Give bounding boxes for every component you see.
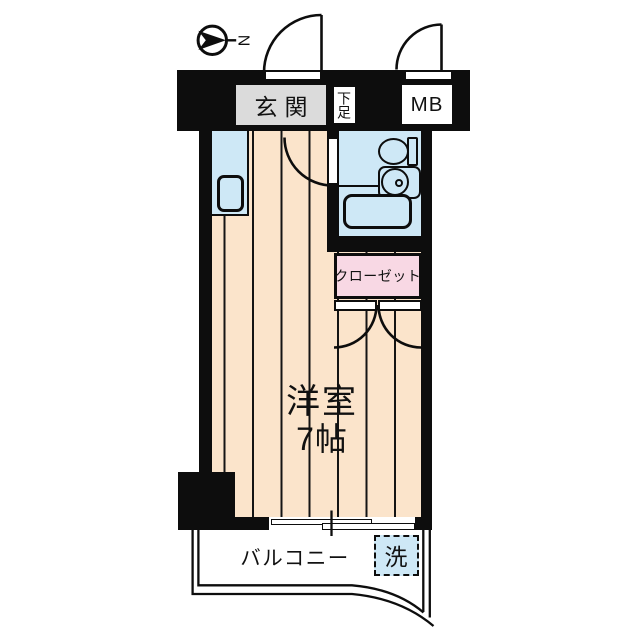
compass: N	[198, 26, 251, 54]
room-size: 7帖	[296, 421, 348, 458]
left-wall	[199, 131, 212, 472]
laundry-machine-pad: 洗	[374, 535, 419, 576]
meter-box-label: MB	[411, 93, 444, 117]
bottom-left-pillar	[178, 472, 235, 530]
closet-door-panel-right	[378, 300, 422, 311]
toilet-bowl	[378, 138, 409, 165]
entrance-door-leaf	[264, 70, 322, 82]
meter-box-door-arc	[397, 25, 442, 70]
closet: クローゼット	[334, 253, 422, 299]
toilet-tank	[407, 137, 418, 166]
compass-needle-icon	[198, 31, 226, 50]
entrance-label: 玄関	[248, 88, 315, 122]
shoe-cabinet: 下足	[332, 85, 357, 125]
balcony-label: バルコニー	[215, 543, 375, 569]
meter-box-door-leaf	[404, 70, 453, 82]
kitchen-sink	[217, 175, 244, 212]
right-wall	[421, 131, 432, 530]
bathroom-door-leaf	[327, 137, 339, 185]
entrance-door-arc	[264, 15, 322, 73]
room-name: 洋室	[286, 384, 358, 421]
bathtub	[343, 194, 413, 229]
closet-label: クローゼット	[334, 266, 421, 286]
compass-circle	[198, 26, 226, 54]
shoe-cabinet-label: 下足	[334, 91, 354, 119]
laundry-label: 洗	[385, 538, 408, 572]
washbasin-drain	[395, 179, 404, 188]
room-title: 洋室 7帖	[217, 381, 427, 461]
balcony-label-text: バルコニー	[240, 541, 350, 571]
counter-edge-line	[339, 185, 380, 188]
closet-door-panel-left	[334, 300, 378, 311]
meter-box: MB	[402, 85, 452, 124]
floorplan: クローゼット 玄関 下足 MB 洗 洋室 7帖 バルコニー	[0, 0, 640, 640]
entrance-area: 玄関	[236, 85, 326, 125]
compass-north-label: N	[235, 35, 252, 47]
window-sash-right	[322, 523, 415, 530]
